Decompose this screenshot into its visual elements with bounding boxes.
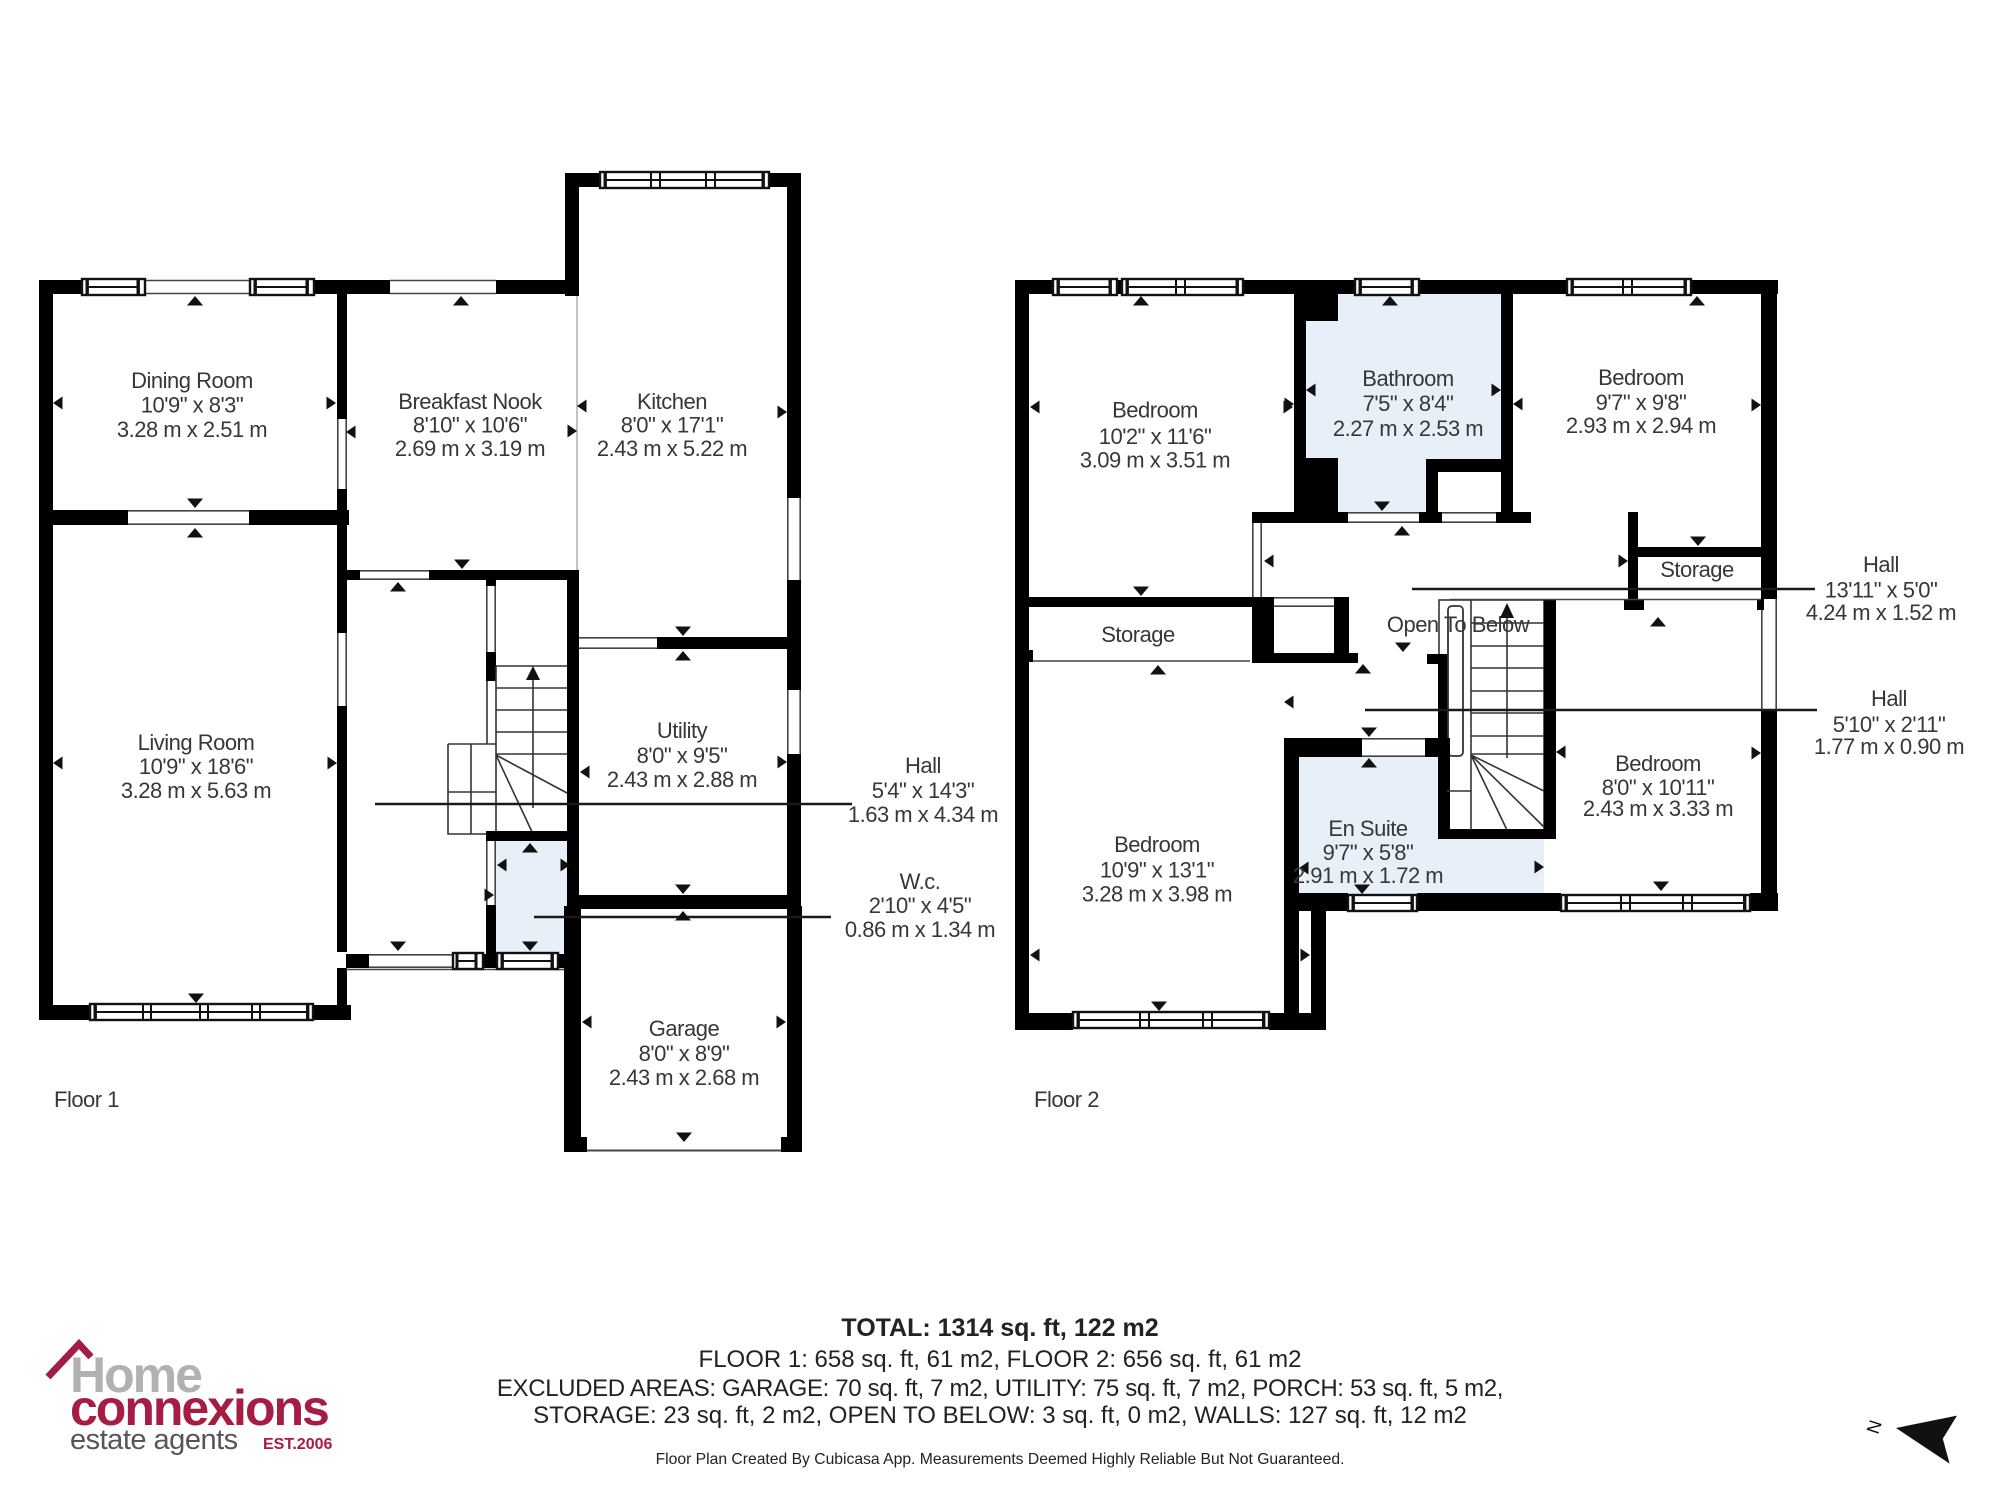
svg-text:2.43 m x 5.22 m: 2.43 m x 5.22 m — [597, 436, 747, 461]
svg-text:2.93 m x 2.94 m: 2.93 m x 2.94 m — [1566, 413, 1716, 438]
svg-text:3.28 m x 2.51 m: 3.28 m x 2.51 m — [117, 417, 267, 442]
svg-text:TOTAL: 1314 sq. ft, 122 m2: TOTAL: 1314 sq. ft, 122 m2 — [841, 1314, 1158, 1342]
svg-text:10'9" x 8'3": 10'9" x 8'3" — [141, 393, 243, 418]
svg-text:10'9" x 18'6": 10'9" x 18'6" — [139, 754, 253, 779]
svg-text:EXCLUDED AREAS: GARAGE: 70 sq.: EXCLUDED AREAS: GARAGE: 70 sq. ft, 7 m2,… — [497, 1375, 1503, 1402]
svg-text:8'10" x 10'6": 8'10" x 10'6" — [413, 413, 527, 438]
svg-text:2.43 m x 3.33 m: 2.43 m x 3.33 m — [1583, 796, 1733, 821]
svg-text:10'9" x 13'1": 10'9" x 13'1" — [1100, 858, 1214, 883]
svg-text:estate agents: estate agents — [70, 1424, 238, 1456]
svg-text:3.28 m x 5.63 m: 3.28 m x 5.63 m — [121, 778, 271, 803]
svg-text:Living Room: Living Room — [138, 730, 255, 755]
svg-text:Hall: Hall — [1863, 552, 1899, 577]
svg-text:2'10" x 4'5": 2'10" x 4'5" — [869, 893, 971, 918]
svg-text:Hall: Hall — [905, 753, 941, 778]
svg-text:Storage: Storage — [1660, 557, 1734, 582]
svg-text:10'2" x 11'6": 10'2" x 11'6" — [1099, 424, 1212, 449]
svg-text:8'0" x 9'5": 8'0" x 9'5" — [637, 743, 728, 768]
svg-text:2.27 m x 2.53 m: 2.27 m x 2.53 m — [1333, 416, 1483, 441]
svg-text:8'0" x 8'9": 8'0" x 8'9" — [639, 1041, 730, 1066]
svg-text:Kitchen: Kitchen — [637, 389, 707, 414]
svg-text:1.77 m x 0.90 m: 1.77 m x 0.90 m — [1814, 734, 1964, 759]
svg-text:Floor Plan Created By Cubicasa: Floor Plan Created By Cubicasa App. Meas… — [656, 1451, 1345, 1468]
svg-text:Storage: Storage — [1101, 622, 1175, 647]
svg-text:STORAGE: 23 sq. ft, 2 m2, OPEN: STORAGE: 23 sq. ft, 2 m2, OPEN TO BELOW:… — [533, 1402, 1467, 1429]
svg-text:Breakfast Nook: Breakfast Nook — [398, 389, 543, 414]
svg-text:Bedroom: Bedroom — [1112, 398, 1198, 423]
svg-text:3.09 m x 3.51 m: 3.09 m x 3.51 m — [1080, 447, 1230, 472]
svg-text:2.43 m x 2.88 m: 2.43 m x 2.88 m — [607, 767, 757, 792]
svg-text:W.c.: W.c. — [900, 869, 941, 894]
svg-text:Dining Room: Dining Room — [131, 368, 253, 393]
svg-text:7'5" x 8'4": 7'5" x 8'4" — [1363, 391, 1454, 416]
svg-text:En Suite: En Suite — [1328, 816, 1407, 841]
svg-text:Bedroom: Bedroom — [1615, 751, 1701, 776]
svg-text:13'11" x 5'0": 13'11" x 5'0" — [1825, 578, 1938, 603]
svg-text:8'0" x 17'1": 8'0" x 17'1" — [621, 413, 723, 438]
svg-text:1.63 m x 4.34 m: 1.63 m x 4.34 m — [848, 802, 998, 827]
svg-text:Bedroom: Bedroom — [1598, 365, 1684, 390]
svg-text:Open To Below: Open To Below — [1387, 612, 1530, 637]
svg-text:Floor 1: Floor 1 — [54, 1087, 119, 1112]
svg-text:Garage: Garage — [649, 1016, 720, 1041]
svg-text:5'4" x 14'3": 5'4" x 14'3" — [872, 778, 974, 803]
svg-text:Hall: Hall — [1871, 686, 1907, 711]
svg-text:FLOOR 1: 658 sq. ft, 61 m2, FL: FLOOR 1: 658 sq. ft, 61 m2, FLOOR 2: 656… — [699, 1346, 1302, 1373]
svg-text:2.43 m x 2.68 m: 2.43 m x 2.68 m — [609, 1065, 759, 1090]
svg-text:Floor 2: Floor 2 — [1034, 1087, 1099, 1112]
svg-text:9'7" x 5'8": 9'7" x 5'8" — [1323, 840, 1414, 865]
svg-text:0.86 m x 1.34 m: 0.86 m x 1.34 m — [845, 917, 995, 942]
svg-text:Bathroom: Bathroom — [1362, 366, 1453, 391]
svg-text:EST.2006: EST.2006 — [263, 1436, 332, 1453]
svg-text:Utility: Utility — [657, 718, 708, 743]
svg-text:2.69 m x 3.19 m: 2.69 m x 3.19 m — [395, 436, 545, 461]
svg-text:Bedroom: Bedroom — [1114, 832, 1200, 857]
svg-text:9'7" x 9'8": 9'7" x 9'8" — [1596, 390, 1687, 415]
svg-text:2.91 m x 1.72 m: 2.91 m x 1.72 m — [1293, 863, 1443, 888]
svg-text:3.28 m x 3.98 m: 3.28 m x 3.98 m — [1082, 882, 1232, 907]
svg-text:4.24 m x 1.52 m: 4.24 m x 1.52 m — [1806, 600, 1956, 625]
